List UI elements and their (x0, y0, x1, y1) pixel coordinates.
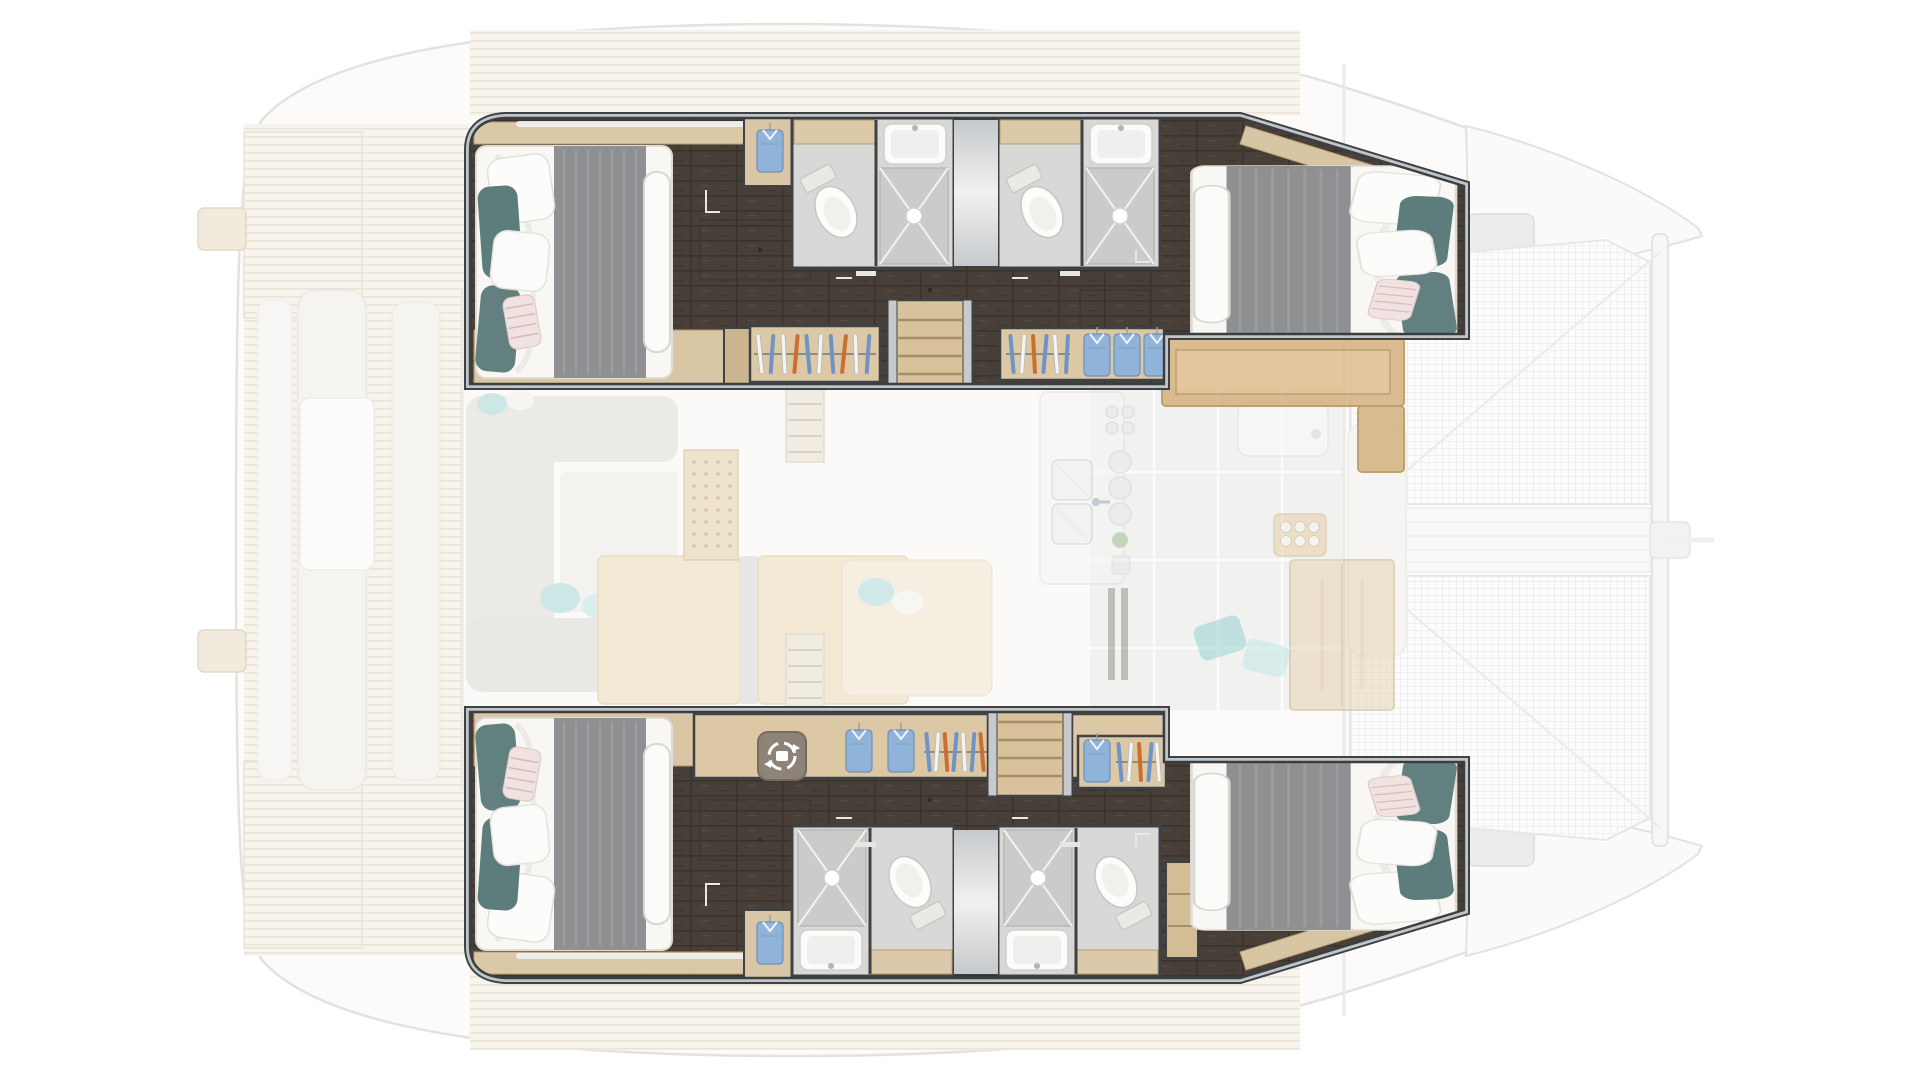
side-deck-top (470, 30, 1300, 116)
forward-table (1238, 402, 1328, 456)
bathroom-aft-bottom (792, 826, 954, 976)
bathroom-fwd-bottom (998, 826, 1160, 976)
wardrobe-top (750, 326, 880, 382)
double-bed (474, 146, 672, 378)
davit-top (198, 208, 246, 250)
glass-tray (1274, 514, 1326, 556)
shirt-niche-top (744, 118, 796, 186)
double-bed (1191, 166, 1458, 342)
shirt-niche-bottom (744, 910, 796, 978)
louvered-cabinet (684, 450, 738, 560)
shirt-locker-top (1000, 327, 1170, 380)
saloon-steps-top (786, 388, 824, 462)
davit-bottom (198, 630, 246, 672)
cabin-divider (724, 328, 752, 384)
floorplan-canvas (0, 0, 1920, 1080)
double-bed (474, 718, 672, 950)
bathroom-aft-top (792, 118, 954, 268)
bathroom-fwd-top (998, 118, 1160, 268)
saloon-steps-bottom (786, 634, 824, 712)
entry-landing-top (954, 120, 998, 266)
aft-cockpit (258, 290, 440, 790)
tall-locker (1290, 560, 1394, 710)
double-bed (1191, 754, 1458, 930)
entry-landing-bottom (954, 830, 998, 974)
wardrobe-bottom (1078, 733, 1166, 788)
floorplan-page (0, 0, 1920, 1080)
